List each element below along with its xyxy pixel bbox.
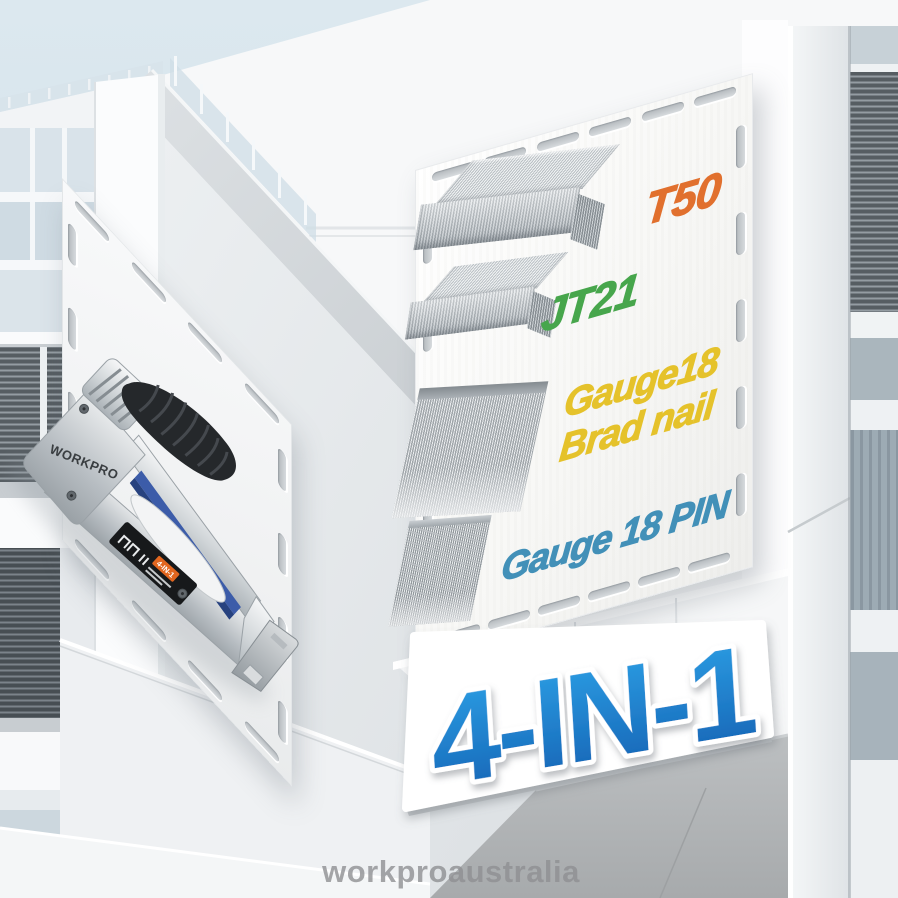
edge-slot <box>68 473 76 520</box>
window-blinds <box>0 548 60 718</box>
edge-slot <box>588 580 630 601</box>
edge-slot <box>278 699 286 746</box>
edge-slot <box>75 199 109 243</box>
concrete-column <box>788 26 850 898</box>
roof-railing <box>0 61 163 112</box>
edge-slot <box>488 609 530 630</box>
banner-text: 4-IN-1 <box>427 618 758 813</box>
edge-slot <box>642 101 684 122</box>
edge-slot <box>278 447 286 494</box>
edge-slot <box>68 305 76 352</box>
watermark-text: workproaustralia <box>322 854 580 890</box>
edge-slot <box>694 86 736 107</box>
staple-label-t50: T50 <box>617 155 748 243</box>
edge-slot <box>68 221 76 268</box>
staple-label-brad: Gauge18 Brad nail <box>530 331 749 479</box>
scene: WORKPRO 4-IN-1 <box>0 0 898 898</box>
edge-slot <box>68 389 76 436</box>
edge-slot <box>188 320 222 364</box>
edge-slot <box>245 381 279 425</box>
edge-slot <box>278 615 286 662</box>
slot-dashes-top <box>75 199 279 426</box>
slot-dashes-right <box>278 447 286 746</box>
staple-label-text: Gauge 18 PIN <box>500 483 731 590</box>
edge-slot <box>132 260 166 304</box>
banner-board <box>406 624 770 808</box>
edge-slot <box>278 531 286 578</box>
edge-slot <box>75 537 109 581</box>
edge-slot <box>188 658 222 702</box>
terrace-railing <box>170 56 316 242</box>
edge-slot <box>132 598 166 642</box>
staple-label-text: T50 <box>643 162 723 236</box>
slot-dashes-left <box>68 221 76 520</box>
edge-slot <box>736 211 745 256</box>
edge-slot <box>589 116 631 137</box>
product-card <box>62 178 292 787</box>
edge-slot <box>438 623 480 644</box>
glass-curtain-wall <box>848 26 898 898</box>
edge-slot <box>688 552 730 573</box>
staple-image-t50 <box>411 145 616 263</box>
edge-slot <box>638 566 680 587</box>
slot-dashes-bottom <box>75 537 279 764</box>
staples-panel: T50 JT21 Gauge18 Brad nail Gauge 18 PIN <box>415 73 753 664</box>
edge-slot <box>538 595 580 616</box>
edge-slot <box>245 719 279 763</box>
staple-image-brad-nail <box>392 381 549 518</box>
